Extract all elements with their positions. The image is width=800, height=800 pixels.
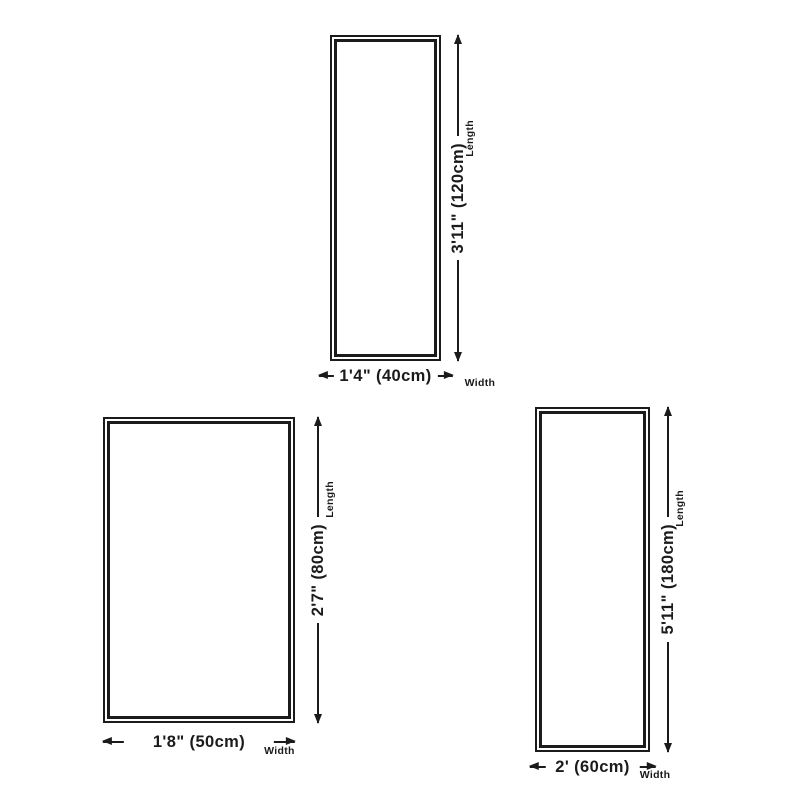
length-axis-label: Length bbox=[675, 490, 686, 527]
length-dimension: 2'7" (80cm) bbox=[312, 417, 324, 723]
arrow-down-icon bbox=[457, 260, 459, 361]
arrow-left-icon bbox=[103, 741, 124, 743]
width-axis-label: Width bbox=[465, 378, 496, 389]
arrow-left-icon bbox=[318, 375, 333, 377]
rug-outline bbox=[330, 35, 441, 361]
arrow-down-icon bbox=[667, 642, 669, 752]
rug-inner-outline bbox=[107, 421, 291, 719]
rug-size-diagram-120x40: 3'11" (120cm) Length 1'4" (40cm) Width bbox=[330, 35, 441, 361]
width-value: 1'8" (50cm) bbox=[153, 734, 245, 751]
rug-inner-outline bbox=[539, 411, 646, 748]
length-value: 5'11" (180cm) bbox=[660, 524, 677, 635]
width-axis-label: Width bbox=[640, 770, 671, 781]
length-value: 2'7" (80cm) bbox=[310, 524, 327, 616]
arrow-right-icon bbox=[640, 766, 656, 768]
arrow-up-icon bbox=[667, 407, 669, 517]
length-dimension: 5'11" (180cm) bbox=[662, 407, 674, 752]
rug-outline bbox=[103, 417, 295, 723]
width-dimension: 1'4" (40cm) Width bbox=[318, 368, 452, 385]
length-axis-label: Length bbox=[465, 120, 476, 157]
rug-size-diagram-80x50: 2'7" (80cm) Length 1'8" (50cm) Width bbox=[103, 417, 295, 723]
length-dimension: 3'11" (120cm) bbox=[452, 35, 464, 361]
arrow-left-icon bbox=[529, 766, 545, 768]
arrow-right-icon bbox=[274, 741, 295, 743]
arrow-up-icon bbox=[457, 35, 459, 136]
rug-outline bbox=[535, 407, 650, 752]
length-value: 3'11" (120cm) bbox=[450, 143, 467, 254]
length-axis-label: Length bbox=[325, 481, 336, 518]
width-axis-label: Width bbox=[264, 746, 295, 757]
rug-size-diagram-180x60: 5'11" (180cm) Length 2' (60cm) Width bbox=[535, 407, 650, 752]
arrow-down-icon bbox=[317, 623, 319, 723]
arrow-right-icon bbox=[438, 375, 453, 377]
rug-inner-outline bbox=[334, 39, 437, 357]
width-value: 1'4" (40cm) bbox=[339, 368, 431, 385]
width-dimension: 1'8" (50cm) Width bbox=[103, 734, 295, 751]
width-dimension: 2' (60cm) Width bbox=[529, 759, 655, 776]
width-value: 2' (60cm) bbox=[555, 759, 629, 776]
arrow-up-icon bbox=[317, 417, 319, 517]
